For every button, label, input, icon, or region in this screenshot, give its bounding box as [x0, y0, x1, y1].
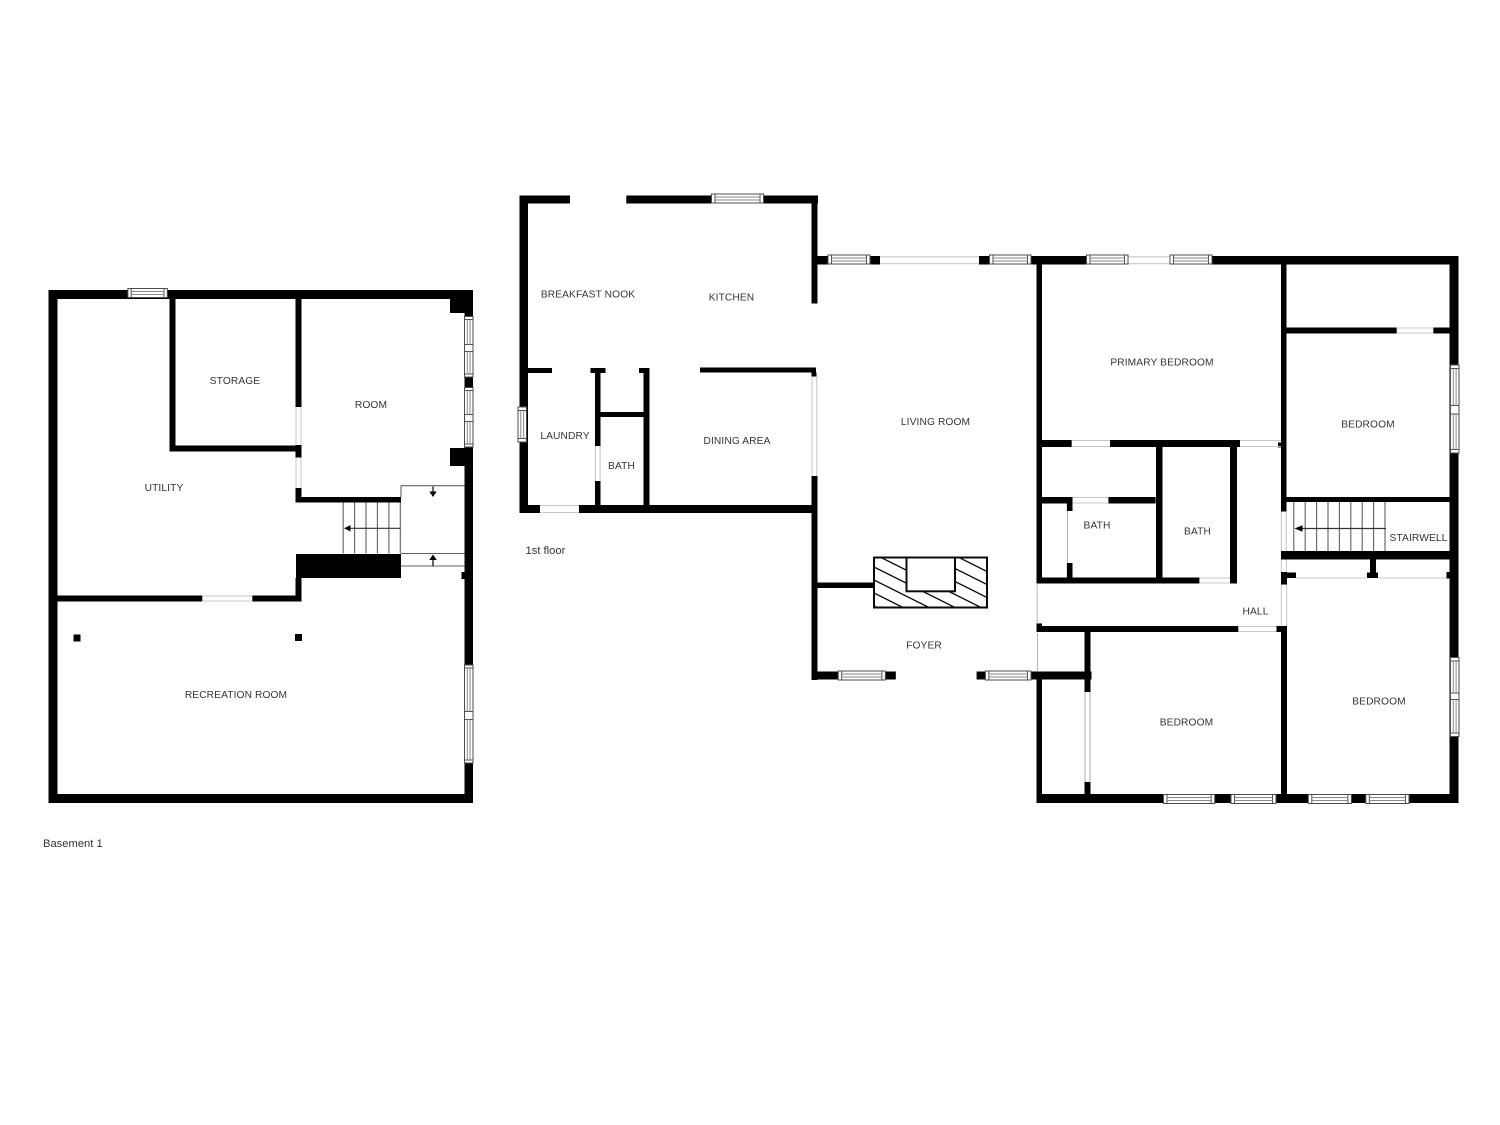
svg-text:LIVING ROOM: LIVING ROOM: [901, 417, 970, 428]
svg-text:BREAKFAST NOOK: BREAKFAST NOOK: [541, 290, 635, 301]
svg-text:BATH: BATH: [608, 461, 635, 472]
svg-text:STAIRWELL: STAIRWELL: [1390, 533, 1448, 544]
svg-text:BEDROOM: BEDROOM: [1341, 420, 1394, 431]
svg-text:1st floor: 1st floor: [526, 545, 566, 557]
svg-text:LAUNDRY: LAUNDRY: [540, 431, 589, 442]
svg-text:FOYER: FOYER: [906, 641, 942, 652]
svg-text:DINING AREA: DINING AREA: [704, 436, 771, 447]
svg-text:PRIMARY BEDROOM: PRIMARY BEDROOM: [1110, 358, 1213, 369]
svg-text:STORAGE: STORAGE: [210, 376, 261, 387]
svg-text:BATH: BATH: [1084, 521, 1111, 532]
svg-text:HALL: HALL: [1243, 607, 1269, 618]
svg-text:BEDROOM: BEDROOM: [1352, 697, 1405, 708]
svg-text:Basement 1: Basement 1: [43, 838, 103, 850]
svg-text:KITCHEN: KITCHEN: [709, 293, 755, 304]
svg-text:BATH: BATH: [1184, 527, 1211, 538]
svg-text:ROOM: ROOM: [355, 400, 387, 411]
svg-text:BEDROOM: BEDROOM: [1160, 718, 1213, 729]
svg-text:UTILITY: UTILITY: [145, 483, 184, 494]
svg-text:RECREATION ROOM: RECREATION ROOM: [185, 690, 287, 701]
